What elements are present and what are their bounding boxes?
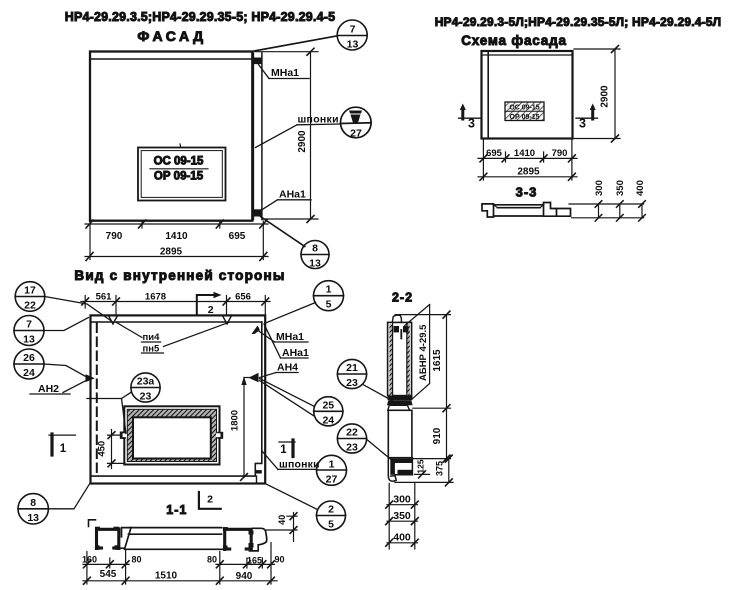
- svg-text:350: 350: [615, 180, 626, 196]
- svg-text:125: 125: [416, 459, 426, 473]
- svg-text:375: 375: [435, 461, 445, 476]
- svg-text:2900: 2900: [600, 85, 611, 108]
- svg-text:2895: 2895: [160, 247, 183, 258]
- svg-text:25: 25: [322, 399, 334, 411]
- svg-text:450: 450: [97, 441, 108, 457]
- svg-text:23: 23: [346, 377, 358, 389]
- svg-text:2895: 2895: [517, 167, 540, 178]
- svg-text:27: 27: [326, 473, 338, 485]
- svg-text:МНа1: МНа1: [271, 67, 299, 79]
- svg-text:1678: 1678: [145, 292, 166, 303]
- svg-text:23а: 23а: [137, 376, 155, 388]
- svg-text:ОР 09-15: ОР 09-15: [510, 114, 540, 121]
- svg-text:НР4-29.29.3-5Л;НР4-29.29.35-5Л: НР4-29.29.3-5Л;НР4-29.29.35-5Л; НР4-29.2…: [435, 15, 722, 29]
- svg-text:790: 790: [106, 231, 123, 242]
- svg-text:2: 2: [328, 504, 334, 516]
- svg-text:МНа1: МНа1: [276, 331, 304, 343]
- svg-text:1: 1: [329, 458, 335, 470]
- svg-text:13: 13: [309, 258, 321, 270]
- svg-text:7: 7: [350, 24, 356, 36]
- svg-text:ФАСАД: ФАСАД: [137, 28, 206, 44]
- svg-text:1615: 1615: [432, 349, 443, 372]
- svg-text:8: 8: [30, 497, 36, 509]
- svg-text:2: 2: [208, 304, 214, 316]
- svg-text:350: 350: [393, 510, 411, 522]
- svg-text:656: 656: [235, 292, 251, 303]
- svg-text:26: 26: [23, 352, 35, 364]
- svg-text:695: 695: [229, 231, 246, 242]
- svg-text:22: 22: [346, 427, 358, 439]
- svg-text:5: 5: [328, 519, 334, 531]
- svg-text:2: 2: [207, 494, 213, 506]
- svg-text:АБНР 4-29.5: АБНР 4-29.5: [418, 324, 429, 381]
- svg-text:23: 23: [140, 391, 152, 403]
- svg-text:8: 8: [312, 243, 318, 255]
- svg-text:ОС 09-15: ОС 09-15: [509, 105, 539, 112]
- svg-text:АН4: АН4: [277, 362, 298, 374]
- svg-text:1800: 1800: [230, 410, 241, 431]
- svg-text:40: 40: [277, 515, 287, 525]
- svg-text:АНа1: АНа1: [282, 347, 309, 359]
- svg-text:910: 910: [432, 427, 443, 444]
- svg-text:пи4: пи4: [143, 332, 161, 343]
- svg-text:400: 400: [635, 180, 646, 196]
- svg-text:695: 695: [486, 148, 503, 159]
- svg-text:561: 561: [96, 292, 113, 303]
- svg-text:13: 13: [27, 512, 39, 524]
- svg-text:24: 24: [322, 414, 334, 426]
- svg-text:165: 165: [247, 556, 262, 566]
- svg-text:1510: 1510: [155, 571, 178, 582]
- svg-text:2-2: 2-2: [392, 291, 413, 305]
- svg-text:545: 545: [100, 569, 117, 580]
- svg-text:940: 940: [236, 571, 253, 582]
- svg-text:Схема фасада: Схема фасада: [461, 33, 567, 48]
- svg-text:1-1: 1-1: [166, 503, 187, 517]
- svg-text:23: 23: [346, 442, 358, 454]
- svg-text:АНа1: АНа1: [279, 189, 306, 201]
- svg-text:ОР 09-15: ОР 09-15: [154, 171, 204, 183]
- svg-text:80: 80: [131, 555, 141, 565]
- svg-text:300: 300: [594, 180, 605, 196]
- svg-text:21: 21: [346, 362, 358, 374]
- svg-text:НР4-29.29.3.5;НР4-29.29.35-5;: НР4-29.29.3.5;НР4-29.29.35-5; НР4-29.29.…: [65, 10, 336, 24]
- svg-text:3-3: 3-3: [516, 185, 538, 200]
- svg-text:90: 90: [274, 555, 284, 565]
- svg-text:300: 300: [393, 493, 411, 505]
- svg-text:5: 5: [326, 299, 332, 311]
- svg-text:1410: 1410: [165, 231, 188, 242]
- svg-text:13: 13: [23, 334, 35, 346]
- svg-text:22: 22: [24, 300, 36, 312]
- svg-text:1410: 1410: [514, 148, 535, 159]
- svg-text:13: 13: [347, 39, 359, 51]
- svg-text:27: 27: [350, 128, 362, 140]
- svg-text:400: 400: [393, 531, 411, 543]
- svg-text:24: 24: [23, 367, 35, 379]
- svg-text:Вид с внутренней стороны: Вид с внутренней стороны: [74, 268, 285, 283]
- svg-text:3: 3: [579, 117, 586, 131]
- svg-text:2900: 2900: [297, 130, 308, 153]
- svg-text:17: 17: [24, 285, 36, 297]
- svg-text:80: 80: [207, 555, 217, 565]
- svg-text:1: 1: [60, 443, 67, 455]
- svg-text:160: 160: [82, 555, 97, 565]
- svg-text:АН2: АН2: [38, 383, 59, 395]
- svg-text:790: 790: [552, 148, 568, 159]
- svg-text:1: 1: [280, 444, 287, 456]
- svg-text:3: 3: [468, 117, 475, 131]
- svg-text:1: 1: [326, 284, 332, 296]
- svg-text:7: 7: [26, 319, 32, 331]
- svg-text:шпонки: шпонки: [279, 459, 320, 471]
- svg-text:ОС 09-15: ОС 09-15: [154, 156, 204, 168]
